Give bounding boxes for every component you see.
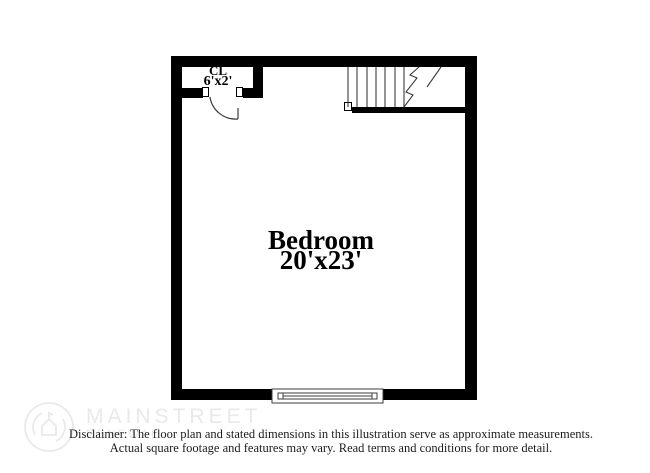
floor-plan-page: CL 6'x2' Bedroom 20'x23' MAINSTREET RENE… [0,0,650,473]
stair-landing-wall [352,107,465,113]
floor-plan: CL 6'x2' Bedroom 20'x23' [171,56,477,400]
window [272,389,383,403]
wall-bottom-right-segment [383,389,477,400]
door-swing-arc [210,97,238,119]
wall-bottom-left-segment [171,389,272,400]
disclaimer-line-1: Disclaimer: The floor plan and stated di… [12,427,650,441]
stair-treads [348,67,404,107]
closet-dimensions: 6'x2' [183,76,253,87]
closet-label: CL 6'x2' [183,65,253,87]
watermark-brand-line1: MAINSTREET [86,406,261,427]
disclaimer-line-2: Actual square footage and features may v… [12,441,650,455]
closet-wall-left-segment [182,88,203,98]
stair-direction-line [404,67,441,107]
closet-wall-right-segment [243,88,263,98]
stair-newel-post [344,102,352,111]
room-dimensions: 20'x23' [231,250,411,270]
wall-right [465,56,477,400]
wall-left [171,56,182,400]
disclaimer: Disclaimer: The floor plan and stated di… [0,427,650,455]
room-label: Bedroom 20'x23' [231,230,411,270]
door-jamb-right [236,87,243,97]
